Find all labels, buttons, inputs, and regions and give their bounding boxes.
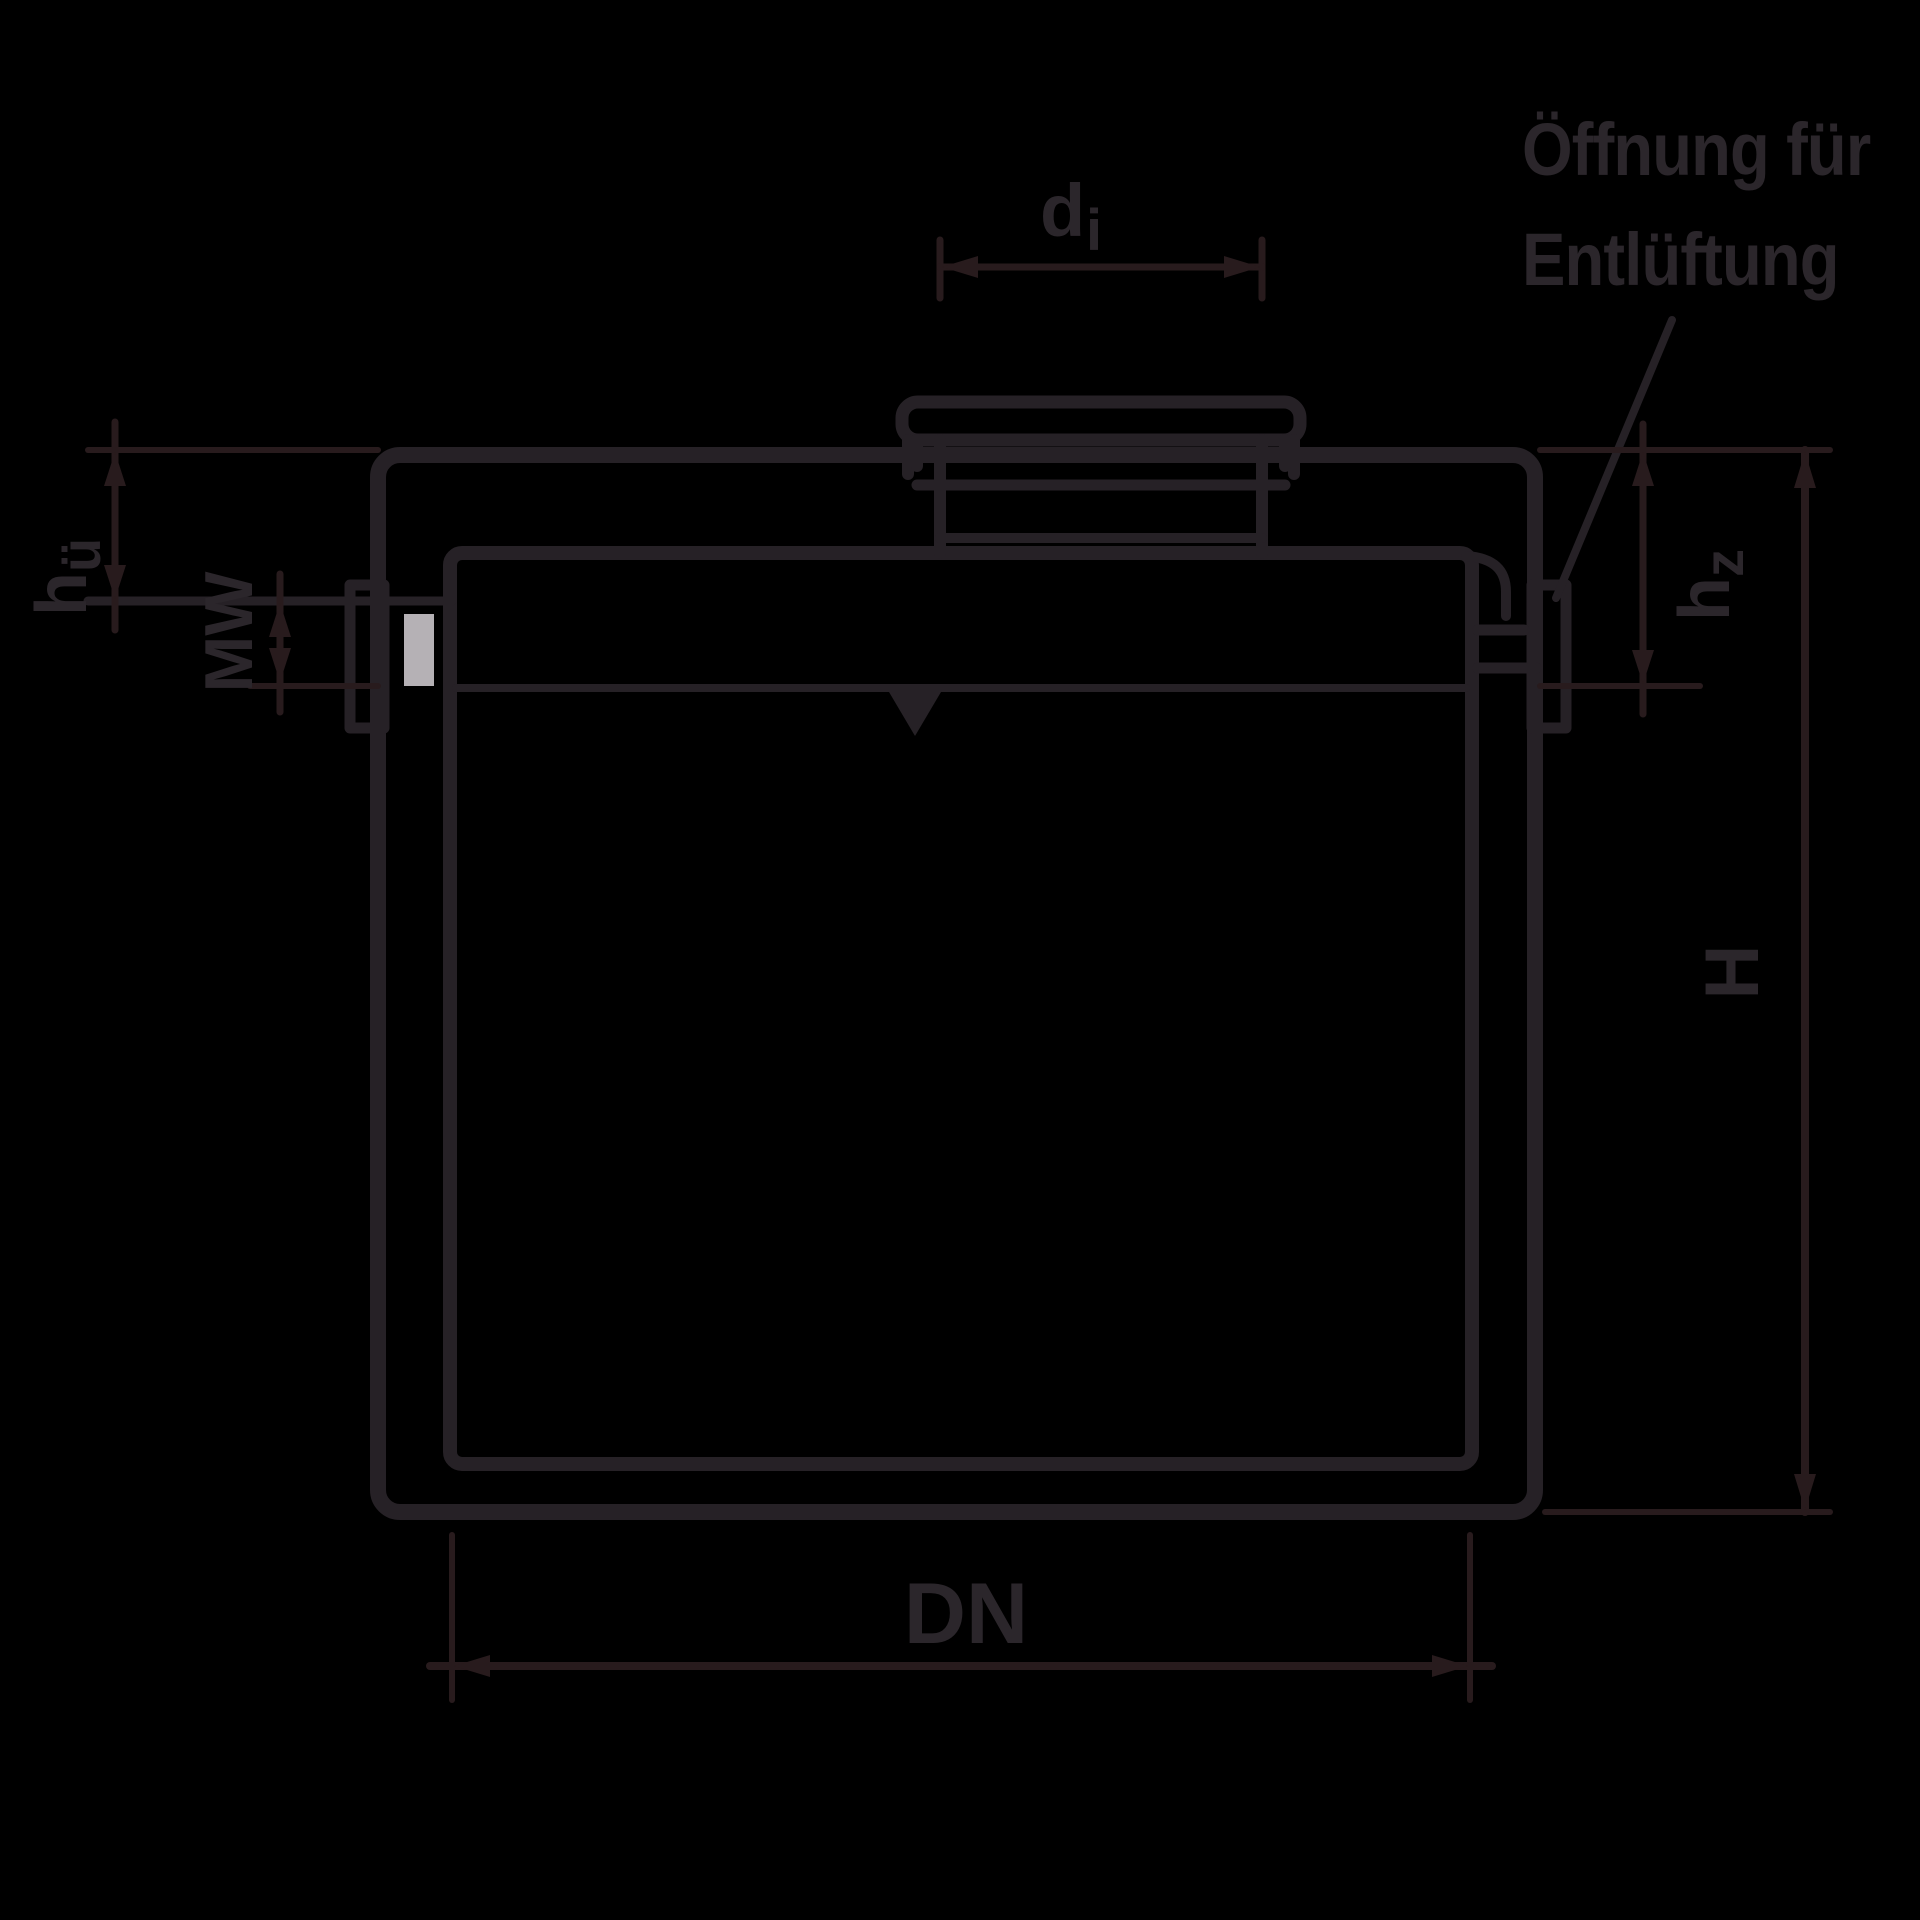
neck-flange (902, 402, 1300, 440)
hue-arrow-top (104, 452, 126, 486)
h-arrow-top (1794, 452, 1816, 488)
vent-annotation-line2: Entlüftung (1522, 218, 1839, 301)
label-h-group: H (1690, 945, 1775, 1000)
dn-arrow-left (454, 1655, 490, 1677)
di-arrow-left (942, 256, 978, 278)
dn-arrow-right (1432, 1655, 1468, 1677)
label-hue: h ü (22, 538, 112, 616)
label-hue-main: h (22, 572, 102, 616)
label-di-main: d (1040, 169, 1085, 252)
label-hz: h z (1665, 549, 1755, 621)
label-hz-sub: z (1692, 549, 1755, 577)
tank-cross-section-diagram: d i Öffnung für Entlüftung h ü MW h z H (0, 0, 1920, 1920)
label-hz-main: h (1665, 577, 1745, 621)
label-mw-group: MW (191, 571, 267, 693)
right-rim-lip (1532, 585, 1566, 728)
vent-leader-line (1556, 320, 1672, 598)
technical-drawing-canvas: d i Öffnung für Entlüftung h ü MW h z H (0, 0, 1920, 1920)
water-level-marker (889, 692, 941, 736)
label-mw: MW (191, 571, 267, 693)
label-hue-sub: ü (49, 538, 112, 572)
hz-arrow-bottom (1632, 650, 1654, 684)
hz-arrow-top (1632, 452, 1654, 486)
left-rim-lip (350, 585, 384, 728)
left-seal-slot (404, 614, 434, 686)
vent-annotation: Öffnung für Entlüftung (1522, 108, 1871, 301)
di-arrow-right (1224, 256, 1260, 278)
h-arrow-bottom (1794, 1474, 1816, 1510)
mw-arrow-top (269, 603, 291, 637)
label-h: H (1690, 945, 1775, 1000)
mw-arrow-bottom (269, 648, 291, 682)
tank-outer-wall (378, 455, 1535, 1512)
vent-annotation-line1: Öffnung für (1522, 108, 1871, 191)
label-di-sub: i (1086, 198, 1102, 263)
label-dn: DN (904, 1566, 1028, 1662)
